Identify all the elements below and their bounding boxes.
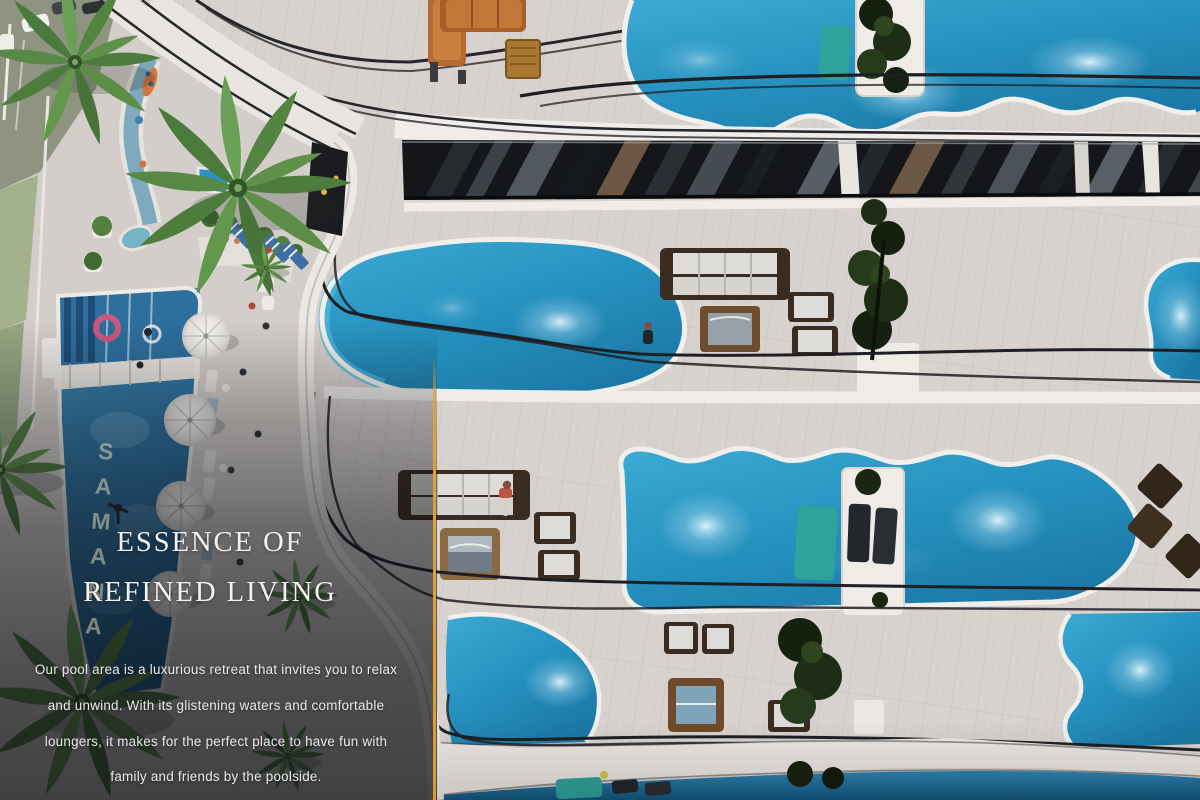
balcony-pool-mid-right [1146, 260, 1200, 380]
hero-heading: ESSENCE OF REFINED LIVING [18, 518, 402, 618]
paragraph-line: family and friends by the poolside. [5, 759, 427, 795]
balcony-pool-bottom-right [1060, 612, 1200, 748]
brochure-page: SAMANA ESSENCE OF REFINED LIVING Our poo… [0, 0, 1200, 800]
gold-accent-divider [433, 358, 436, 800]
paragraph-line: Our pool area is a luxurious retreat tha… [5, 652, 427, 688]
paragraph-line: and unwind. With its glistening waters a… [5, 688, 427, 724]
person-standing [643, 322, 653, 344]
hero-heading-line-2: REFINED LIVING [18, 568, 402, 618]
paragraph-line: loungers, it makes for the perfect place… [5, 724, 427, 760]
wood-side-table [506, 40, 540, 78]
hero-paragraph: Our pool area is a luxurious retreat tha… [5, 652, 427, 795]
balcony-pool-lower-wide [621, 448, 1138, 616]
hero-heading-line-1: ESSENCE OF [18, 518, 402, 568]
